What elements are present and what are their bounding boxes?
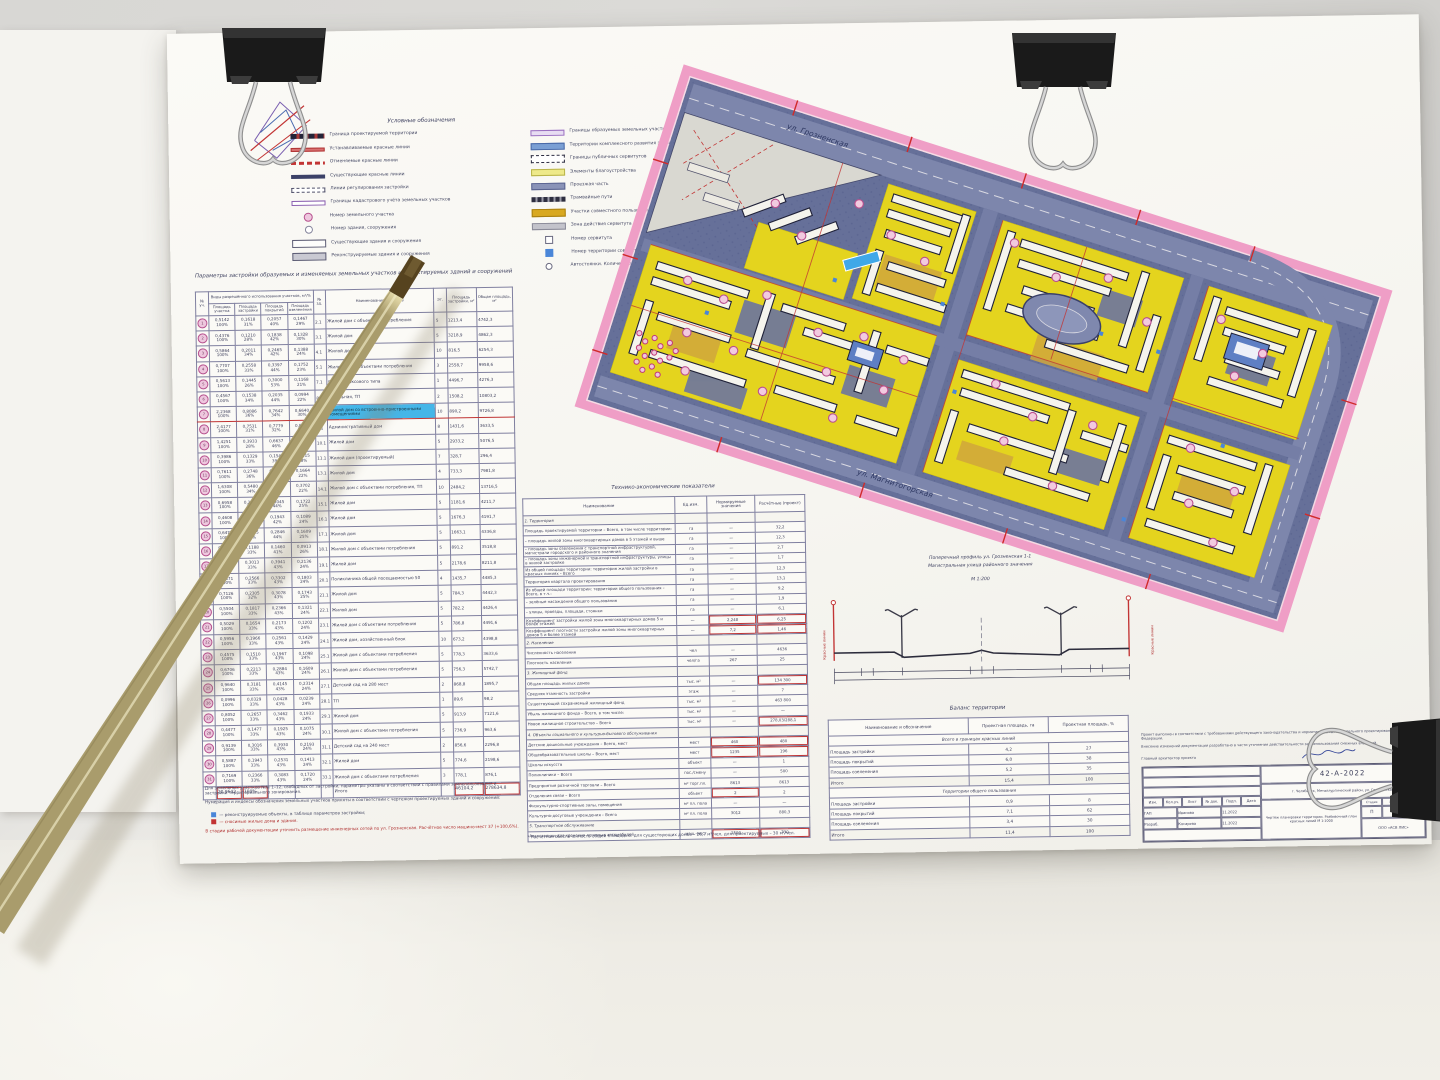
- plot-number-badge: 23: [203, 652, 213, 662]
- road-profile-drawing: [816, 585, 1148, 690]
- profile-scale: М 1:200: [816, 575, 1146, 585]
- legend-swatch-icon: [545, 236, 553, 244]
- plot-number-badge: 19: [202, 592, 212, 602]
- legend-swatch-icon: [532, 223, 566, 231]
- revision-col: Подп.: [1222, 796, 1242, 806]
- binder-clip: [1296, 718, 1440, 822]
- legend-swatch-icon: [292, 253, 326, 262]
- revision-col: № док.: [1202, 796, 1222, 806]
- plot-number-badge: 11: [200, 470, 210, 480]
- legend-title: Условные обозначения: [316, 116, 526, 125]
- legend-label: Номер земельного участка: [330, 211, 510, 218]
- legend-swatch-icon: [530, 129, 564, 136]
- revision-col: Лист: [1182, 797, 1202, 807]
- legend-swatch-icon: [304, 212, 313, 221]
- legend-swatch-icon: [531, 197, 565, 203]
- params-table: № уч. Виды разрешённого использования уч…: [195, 287, 521, 801]
- revision-col: Кол.уч.: [1163, 797, 1183, 807]
- legend-swatch-icon: [531, 142, 565, 150]
- plot-number-badge: 7: [199, 410, 209, 420]
- legend-swatch-icon: [291, 201, 325, 207]
- tech-title: Технико-экономические показатели: [522, 482, 804, 493]
- chief-architect-line: Главный архитектор проекта: [1141, 754, 1321, 761]
- legend-label: Линии регулирования застройки: [330, 185, 510, 192]
- plot-number-badge: 12: [200, 485, 210, 495]
- red-square-icon: [211, 819, 216, 824]
- plan-sheet: Условные обозначения Граница проектируем…: [167, 14, 1432, 864]
- legend-label: Границы кадастрового учёта земельных уча…: [330, 198, 510, 205]
- plot-number-badge: 26: [203, 698, 213, 708]
- legend-item: Реконструируемые здания и сооружения: [292, 247, 522, 264]
- note-red-warning: В стадии рабочей документации уточнить р…: [205, 823, 520, 833]
- sign-rows: ГАП Иванова 11.2022 Разраб. Косарева 11.…: [1143, 806, 1261, 830]
- binder-clip: [1012, 33, 1116, 183]
- legend-swatch-icon: [545, 263, 552, 270]
- revision-col: Изм.: [1143, 797, 1163, 807]
- dimension-lines: [834, 664, 1129, 684]
- plot-number-badge: 30: [204, 759, 214, 769]
- plot-number-badge: 6: [199, 394, 209, 404]
- params-title: Параметры застройки образуемых и изменяе…: [195, 269, 513, 280]
- plot-number-badge: 25: [203, 683, 213, 693]
- revision-col: Дата: [1241, 796, 1261, 806]
- legend-label: Реконструируемые здания и сооружения: [331, 251, 511, 258]
- plot-number-badge: 9: [199, 440, 209, 450]
- plot-number-badge: 10: [200, 455, 210, 465]
- plot-number-badge: 15: [201, 531, 211, 541]
- plot-number-badge: 21: [202, 622, 212, 632]
- legend-swatch-icon: [531, 155, 565, 164]
- plot-number-badge: 16: [201, 546, 211, 556]
- backing-sheet: [0, 30, 176, 812]
- legend-label: Отменяемые красные линии: [330, 158, 510, 165]
- legend-swatch-icon: [531, 182, 565, 190]
- plot-number-badge: 5: [198, 379, 208, 389]
- legend-swatch-icon: [545, 249, 553, 257]
- plot-number-badge: 1: [197, 318, 207, 328]
- legend-label: Существующие здания и сооружения: [331, 238, 511, 245]
- binder-clip: [222, 28, 326, 178]
- legend-swatch-icon: [531, 169, 565, 177]
- blue-square-icon: [211, 812, 216, 817]
- legend-swatch-icon: [292, 239, 326, 248]
- plot-number-badge: 4: [198, 364, 208, 374]
- plot-number-badge: 28: [204, 728, 214, 738]
- plot-number-badge: 14: [200, 516, 210, 526]
- photo-of-plan-on-desk: { "legend":{ "title":"Условные обозначен…: [0, 0, 1440, 1080]
- plot-number-badge: 18: [201, 577, 211, 587]
- legend-label: Существующие красные линии: [330, 171, 510, 178]
- plot-number-badge: 20: [202, 607, 212, 617]
- plot-number-badge: 27: [204, 713, 214, 723]
- legend-swatch-icon: [291, 187, 325, 193]
- legend-label: Граница проектируемой территории: [329, 131, 509, 138]
- plot-number-badge: 17: [201, 561, 211, 571]
- legend-label: Номер здания, сооружения: [331, 225, 511, 232]
- plot-number-badge: 24: [203, 668, 213, 678]
- legend-swatch-icon: [305, 226, 313, 234]
- plot-number-badge: 2: [198, 334, 208, 344]
- red-line-label: Красные линии: [1150, 625, 1154, 654]
- plot-number-badge: 3: [198, 349, 208, 359]
- plot-number-badge: 31: [205, 774, 215, 784]
- plot-number-badge: 8: [199, 425, 209, 435]
- balance-table: Наименование и обозначениеПроектная площ…: [828, 715, 1131, 841]
- balance-title: Баланс территории: [828, 703, 1128, 714]
- legend-swatch-icon: [532, 209, 566, 218]
- plot-number-badge: 29: [204, 744, 214, 754]
- tech-table: НаименованиеЕд.изм.Нормируемые значенияР…: [522, 494, 810, 842]
- legend-label: Устанавливаемые красные линии: [330, 144, 510, 151]
- plot-number-badge: 22: [202, 637, 212, 647]
- plot-number-badge: 13: [200, 501, 210, 511]
